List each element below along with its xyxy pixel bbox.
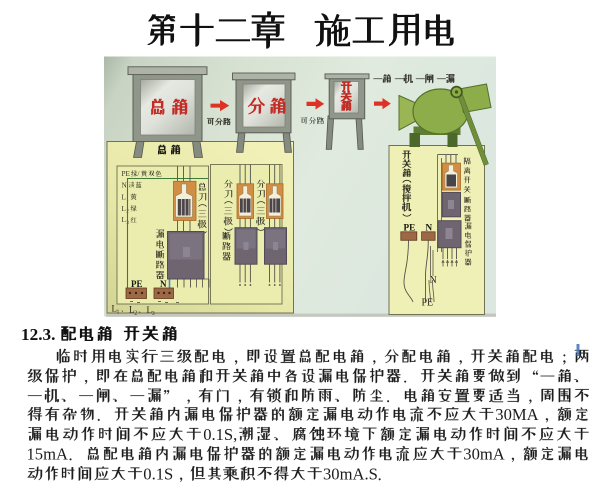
svg-text:15mA: 15mA — [27, 444, 69, 463]
svg-text:PE: PE — [131, 279, 143, 289]
svg-text:L: L — [122, 193, 126, 201]
svg-text:30MA: 30MA — [495, 405, 538, 424]
svg-text:30mA: 30mA — [463, 444, 505, 463]
svg-text:12.3.: 12.3. — [21, 325, 55, 344]
svg-text:PE: PE — [122, 170, 131, 178]
svg-text:L: L — [122, 205, 126, 213]
svg-text:N: N — [430, 275, 437, 286]
svg-text:PE: PE — [422, 298, 434, 309]
svg-text:0.1S: 0.1S — [143, 464, 173, 483]
svg-text:/: / — [138, 170, 140, 178]
svg-text:3: 3 — [152, 311, 155, 317]
svg-text:2: 2 — [134, 311, 137, 317]
svg-text:N: N — [122, 181, 128, 189]
svg-text:N: N — [426, 223, 433, 233]
svg-text:N: N — [160, 279, 167, 289]
svg-text:1: 1 — [117, 310, 120, 316]
svg-text:30mA.S: 30mA.S — [323, 464, 378, 483]
svg-text:PE: PE — [404, 223, 416, 233]
svg-text:0.1S,: 0.1S, — [203, 425, 237, 444]
svg-text:L: L — [122, 216, 126, 224]
